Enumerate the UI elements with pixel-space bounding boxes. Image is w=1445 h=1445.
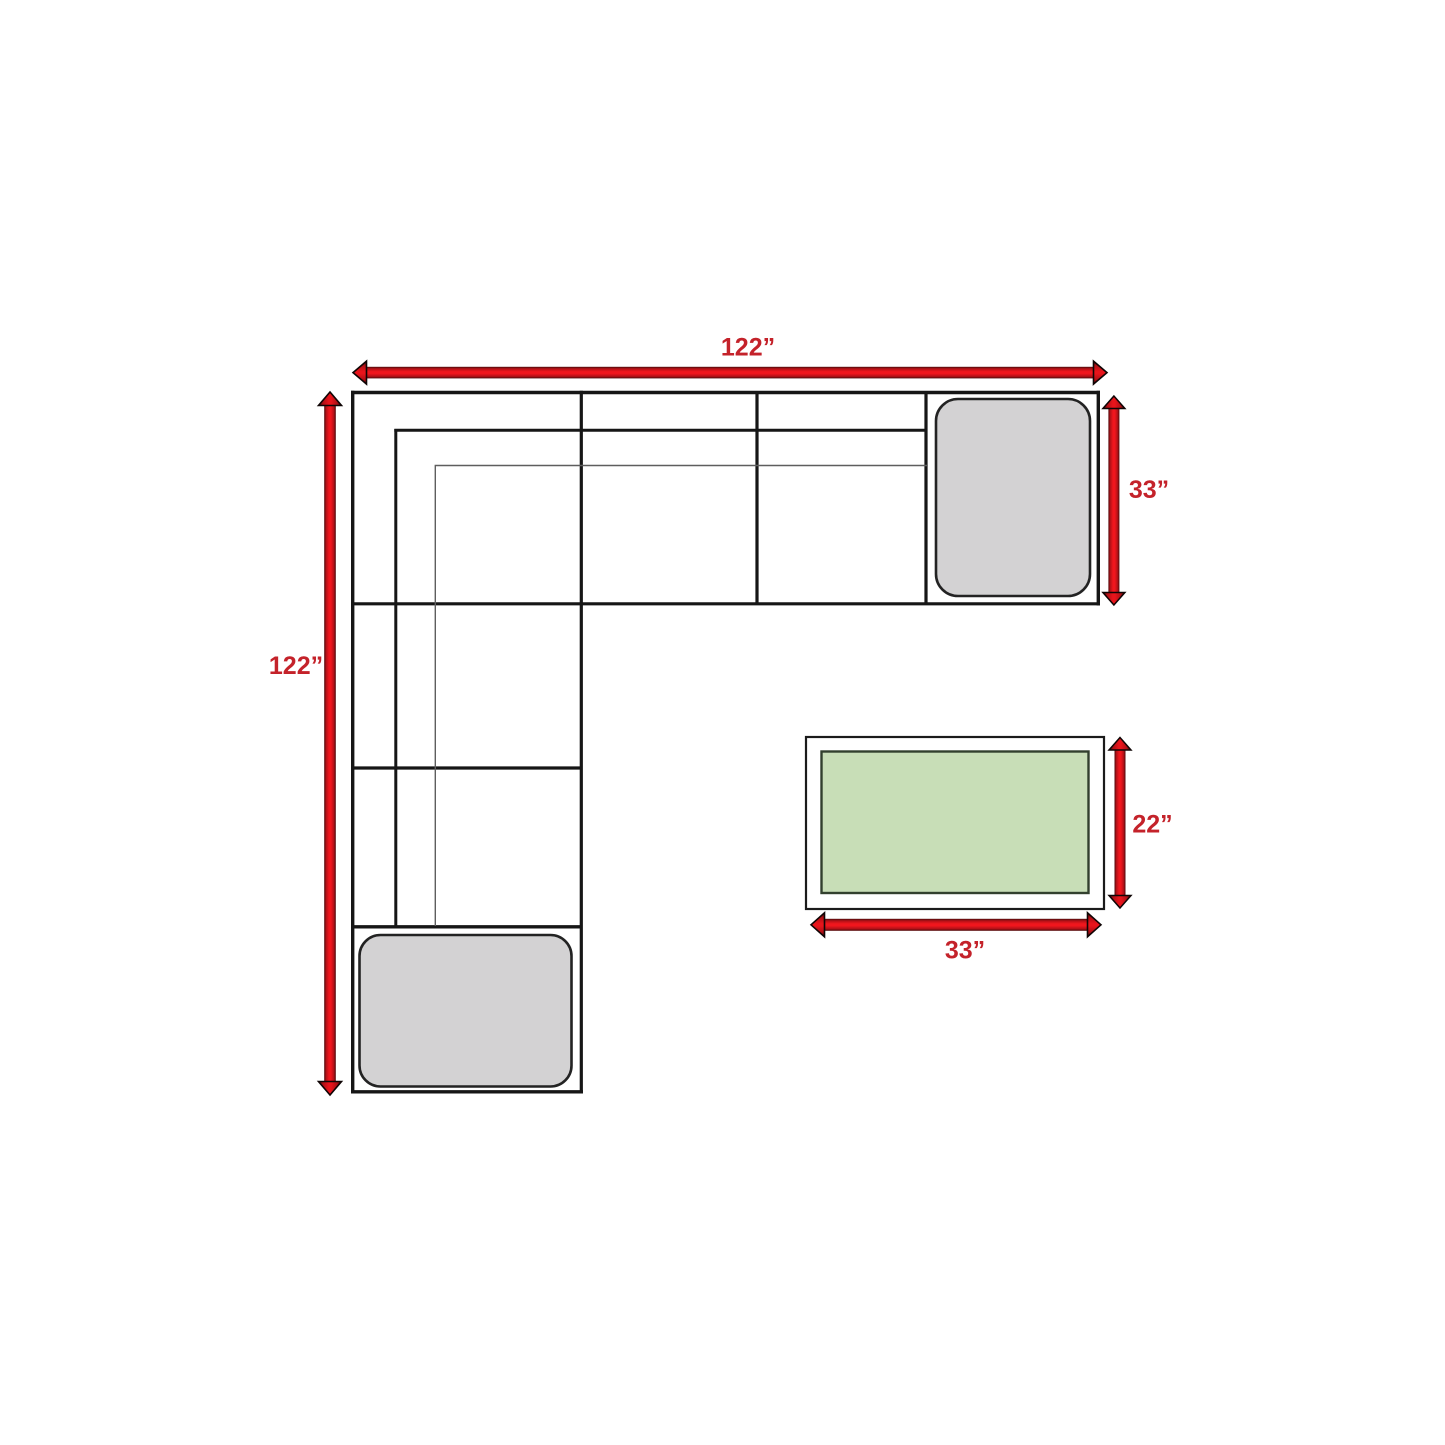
svg-text:33”: 33” (1129, 476, 1169, 504)
svg-text:22”: 22” (1132, 811, 1172, 839)
svg-text:33”: 33” (945, 937, 985, 965)
svg-text:122”: 122” (269, 652, 323, 680)
svg-text:122”: 122” (721, 334, 775, 362)
